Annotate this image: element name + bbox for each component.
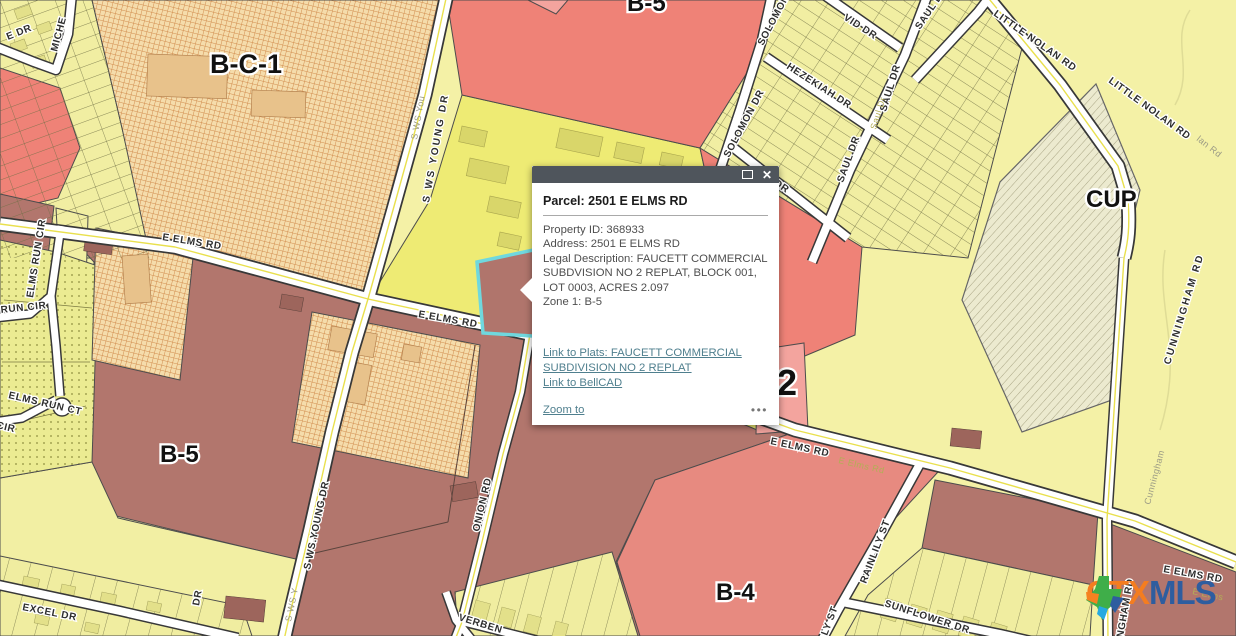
popup-divider	[543, 215, 768, 216]
popup-title: Parcel: 2501 E ELMS RD	[543, 194, 768, 208]
zone-label-b4: B-4	[716, 579, 755, 606]
field-address: Address: 2501 E ELMS RD	[543, 237, 768, 251]
logo-text-mls: MLS	[1149, 574, 1216, 612]
popup-links: Link to Plats: FAUCETT COMMERCIAL SUBDIV…	[543, 346, 768, 391]
maximize-icon[interactable]	[742, 170, 753, 179]
popup-titlebar: ✕	[532, 166, 779, 183]
zone-label-cup: CUP	[1086, 186, 1137, 213]
popup-footer: Zoom to •••	[543, 404, 768, 416]
field-legal-description: Legal Description: FAUCETT COMMERCIAL SU…	[543, 252, 768, 295]
ctxmls-logo: CTXMLS	[1086, 574, 1216, 612]
popup-body: Parcel: 2501 E ELMS RD Property ID: 3689…	[532, 183, 779, 425]
zone-label-b5: B-5	[160, 441, 199, 468]
zoom-to-link[interactable]: Zoom to	[543, 404, 584, 416]
field-zone: Zone 1: B-5	[543, 295, 768, 309]
close-icon[interactable]: ✕	[762, 169, 772, 181]
parcel-info-popup: ✕ Parcel: 2501 E ELMS RD Property ID: 36…	[532, 166, 779, 425]
popup-pointer	[520, 278, 532, 302]
zone-label-b5-top: B-5	[627, 0, 666, 17]
map-viewport: E DR MICHE ELMS RUN CIR RUN CIR ELMS RUN…	[0, 0, 1236, 636]
zone-label-2: 2	[777, 362, 797, 403]
field-property-id: Property ID: 368933	[543, 223, 768, 237]
more-options-icon[interactable]: •••	[751, 404, 768, 416]
texas-icon	[1086, 574, 1126, 622]
link-plats[interactable]: Link to Plats: FAUCETT COMMERCIAL SUBDIV…	[543, 346, 768, 376]
zone-label-bc1: B-C-1	[210, 49, 282, 79]
link-bellcad[interactable]: Link to BellCAD	[543, 376, 768, 391]
